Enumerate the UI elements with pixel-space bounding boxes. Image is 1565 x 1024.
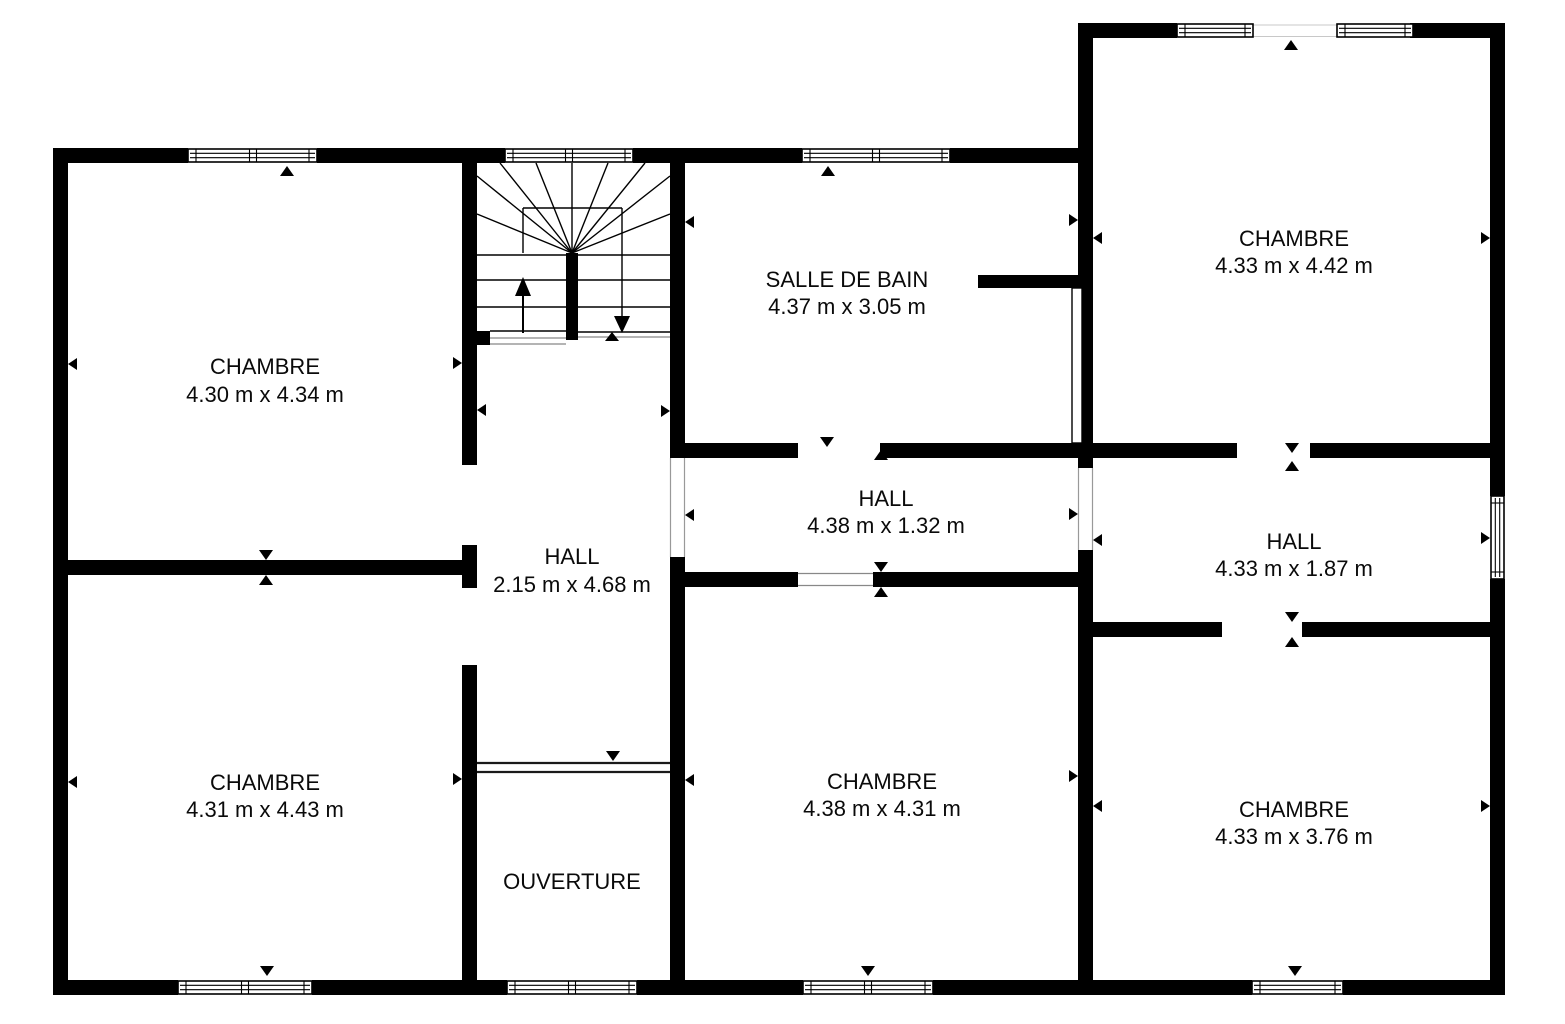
wall-hall-middle-bottom xyxy=(685,572,798,587)
room-dimensions: 4.38 m x 1.32 m xyxy=(807,513,965,538)
tick-right-icon xyxy=(1069,508,1078,520)
tick-right-icon xyxy=(661,405,670,417)
tick-left-icon xyxy=(1093,232,1102,244)
room-label: CHAMBRE xyxy=(1239,226,1349,251)
tick-up-icon xyxy=(1284,40,1298,50)
wall-exterior-top xyxy=(317,148,505,163)
window-frame xyxy=(1252,981,1343,994)
door-tick-up-icon xyxy=(1285,637,1299,647)
wall-top-right-room-left xyxy=(1078,23,1093,163)
window xyxy=(803,981,933,994)
tick-left-icon xyxy=(685,774,694,786)
room-label: HALL xyxy=(858,486,913,511)
door-tick-down-icon xyxy=(820,437,834,447)
tick-right-icon xyxy=(453,773,462,785)
window-frame xyxy=(505,149,633,162)
room-dimensions: 4.33 m x 1.87 m xyxy=(1215,556,1373,581)
wall-exterior-bottom xyxy=(53,980,178,995)
tick-right-icon xyxy=(1069,770,1078,782)
tick-down-icon xyxy=(260,966,274,976)
tick-left-icon xyxy=(1093,534,1102,546)
wall-exterior-top xyxy=(950,148,1093,163)
wall-middle-right-divider xyxy=(1078,550,1093,995)
tick-left-icon xyxy=(685,216,694,228)
window xyxy=(1491,496,1504,579)
window xyxy=(1337,24,1413,37)
wall-hall-middle-bottom xyxy=(873,572,1078,587)
door-tick-up-icon xyxy=(874,587,888,597)
tick-left-icon xyxy=(685,509,694,521)
room-dimensions: 2.15 m x 4.68 m xyxy=(493,572,651,597)
wall-exterior-right xyxy=(1490,23,1505,496)
window xyxy=(505,149,633,162)
tick-right-icon xyxy=(1481,800,1490,812)
tick-left-icon xyxy=(1093,800,1102,812)
window xyxy=(1252,981,1343,994)
window xyxy=(1177,24,1253,37)
wall-exterior-right xyxy=(1490,579,1505,995)
wall-central-hall-right xyxy=(670,163,685,458)
tick-left-icon xyxy=(68,358,77,370)
window-frame xyxy=(1337,24,1413,37)
room-label: CHAMBRE xyxy=(1239,797,1349,822)
door-tick-down-icon xyxy=(1285,443,1299,453)
wall-left-rooms-divider xyxy=(53,560,477,575)
wall-exterior-bottom xyxy=(312,980,507,995)
room-dimensions: 4.33 m x 3.76 m xyxy=(1215,824,1373,849)
room-dimensions: 4.38 m x 4.31 m xyxy=(803,796,961,821)
tick-up-icon xyxy=(821,166,835,176)
room-dimensions: 4.30 m x 4.34 m xyxy=(186,382,344,407)
door-leaf xyxy=(1072,288,1082,443)
window-frame xyxy=(188,149,317,162)
ouverture-divider xyxy=(477,763,670,772)
room-dimensions: 4.37 m x 3.05 m xyxy=(768,294,926,319)
tick-left-icon xyxy=(477,404,486,416)
window xyxy=(188,149,317,162)
wall-hall-right-bottom xyxy=(1093,622,1222,637)
wall-hall-right-top xyxy=(1093,443,1237,458)
stair-winder-line xyxy=(572,214,670,253)
walls xyxy=(53,23,1505,995)
door-tick-up-icon xyxy=(259,575,273,585)
room-label: CHAMBRE xyxy=(827,769,937,794)
stair-down-arrowhead-icon xyxy=(614,316,630,333)
wall-exterior-top xyxy=(53,148,188,163)
room-label: HALL xyxy=(544,544,599,569)
wall-hall-middle-top xyxy=(880,443,1078,458)
door-tick-down-icon xyxy=(259,550,273,560)
room-label: SALLE DE BAIN xyxy=(766,267,929,292)
tick-down-icon xyxy=(1288,966,1302,976)
room-label: HALL xyxy=(1266,529,1321,554)
stair-winder-line xyxy=(477,176,572,253)
window xyxy=(178,981,312,994)
wall-bathroom-stub xyxy=(978,275,1078,288)
wall-central-hall-left xyxy=(462,163,477,465)
door-tick-down-icon xyxy=(874,562,888,572)
wall-exterior-bottom xyxy=(637,980,803,995)
tick-right-icon xyxy=(1481,232,1490,244)
wall-exterior-top xyxy=(633,148,802,163)
room-dimensions: 4.33 m x 4.42 m xyxy=(1215,253,1373,278)
floor-plan-drawing: CHAMBRE 4.30 m x 4.34 m CHAMBRE 4.31 m x… xyxy=(0,0,1565,1024)
window xyxy=(802,149,950,162)
room-label: OUVERTURE xyxy=(503,869,641,894)
wall-central-hall-right xyxy=(670,557,685,995)
room-dimensions: 4.31 m x 4.43 m xyxy=(186,797,344,822)
tick-down-icon xyxy=(861,966,875,976)
room-label: CHAMBRE xyxy=(210,354,320,379)
window-frame xyxy=(803,981,933,994)
wall-hall-right-bottom xyxy=(1302,622,1490,637)
wall-stair-divider xyxy=(566,253,578,340)
window-frame xyxy=(178,981,312,994)
window-frame xyxy=(1177,24,1253,37)
window-frame xyxy=(802,149,950,162)
wall-hall-middle-top xyxy=(685,443,798,458)
wall-exterior-bottom xyxy=(1343,980,1505,995)
window-frame xyxy=(507,981,637,994)
door-tick-down-icon xyxy=(1285,612,1299,622)
door-tick-down-icon xyxy=(606,751,620,761)
wall-top-right-room-top xyxy=(1078,23,1177,38)
wall-hall-right-top xyxy=(1310,443,1490,458)
stair-winder-line xyxy=(477,214,572,253)
wall-central-hall-left xyxy=(462,665,477,995)
door-tick-up-icon xyxy=(1285,461,1299,471)
tick-up-icon xyxy=(280,166,294,176)
window xyxy=(507,981,637,994)
wall-stair-stub xyxy=(462,331,490,345)
tick-right-icon xyxy=(453,357,462,369)
window-frame xyxy=(1491,496,1504,579)
room-label: CHAMBRE xyxy=(210,770,320,795)
tick-left-icon xyxy=(68,776,77,788)
tick-right-icon xyxy=(1481,532,1490,544)
tick-right-icon xyxy=(1069,214,1078,226)
floor-plan: CHAMBRE 4.30 m x 4.34 m CHAMBRE 4.31 m x… xyxy=(0,0,1565,1024)
